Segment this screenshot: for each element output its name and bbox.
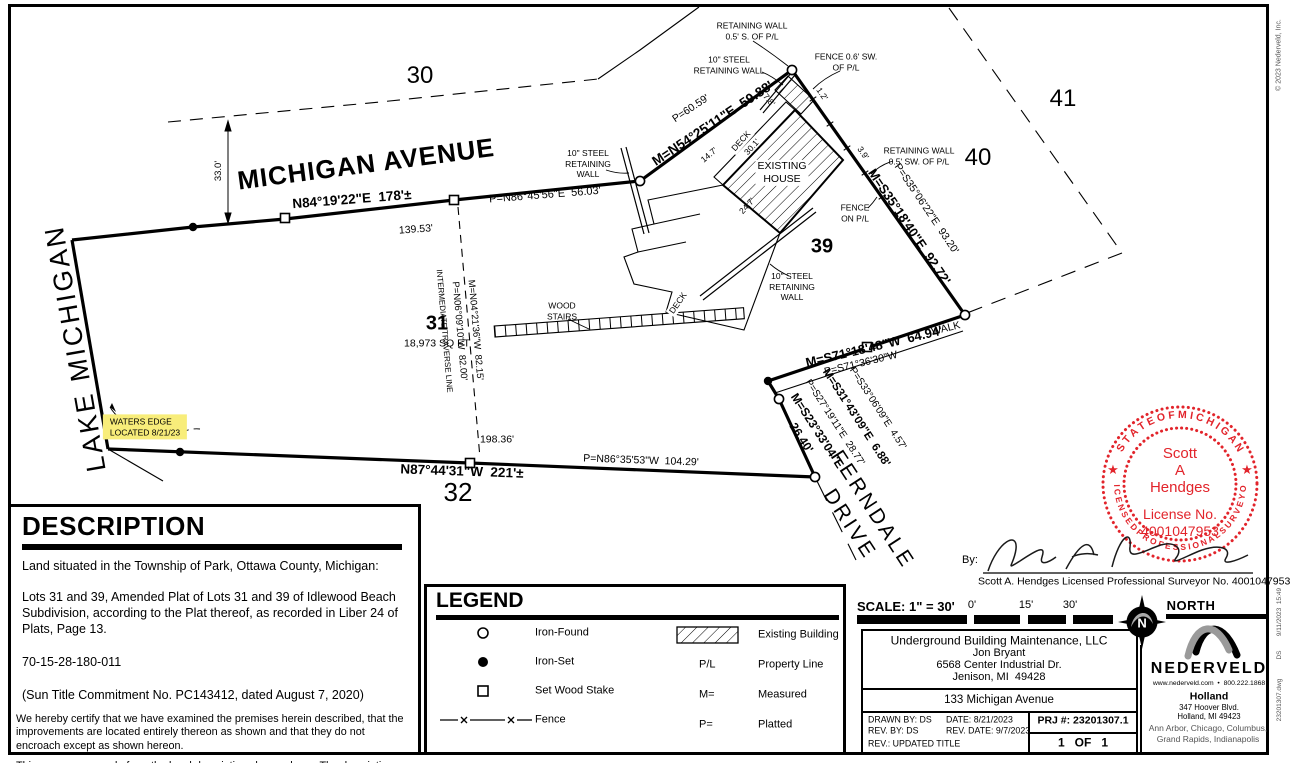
description-title: DESCRIPTION bbox=[22, 511, 404, 542]
title-block-divider-1 bbox=[861, 688, 1138, 690]
lot-41: 41 bbox=[1050, 84, 1077, 114]
legend-set-wood-stake: Set Wood Stake bbox=[535, 684, 614, 697]
north-label: NORTH bbox=[1167, 598, 1216, 614]
scale-tick-30: 30' bbox=[1063, 599, 1077, 613]
dim-row-width: 33.0' bbox=[213, 161, 225, 181]
legend-title: LEGEND bbox=[436, 589, 843, 613]
site-address: 133 Michigan Avenue bbox=[944, 693, 1054, 707]
drawn-by: DRAWN BY: DS bbox=[868, 715, 932, 726]
legend-pl-symbol: P/L bbox=[699, 658, 716, 671]
signature-by-label: By: bbox=[962, 554, 978, 568]
margin-plot-stamp: 9/11/2023 15:49 bbox=[1276, 588, 1284, 636]
title-block-divider-3 bbox=[1028, 732, 1138, 734]
seal-star-left: ★ bbox=[1107, 462, 1119, 477]
row-dashed-lines bbox=[168, 7, 1122, 560]
lot-30: 30 bbox=[407, 61, 434, 91]
description-title-rule bbox=[22, 544, 402, 550]
seal-license-label: License No. bbox=[1143, 506, 1217, 522]
legend-fence: Fence bbox=[535, 713, 566, 726]
seal-name-2: A bbox=[1175, 462, 1185, 479]
callout-fence-on-pl: FENCE ON P/L bbox=[841, 202, 870, 223]
rev-by: REV. BY: DS bbox=[868, 726, 919, 737]
legend-platted: Platted bbox=[758, 718, 792, 731]
seal-name-1: Scott bbox=[1163, 445, 1198, 462]
nederveld-logo-arc bbox=[1188, 629, 1237, 656]
callout-steel-wall-low: 10" STEEL RETAINING WALL bbox=[769, 271, 815, 303]
signature-name-line: Scott A. Hendges Licensed Professional S… bbox=[978, 576, 1290, 589]
margin-filename: 23201307.dwg bbox=[1276, 679, 1284, 722]
description-cert1: We hereby certify that we have examined … bbox=[16, 713, 404, 753]
sheet-number: 1 OF 1 bbox=[1058, 736, 1108, 751]
callout-waters-edge: WATERS EDGE LOCATED 8/21/23 bbox=[103, 414, 187, 439]
compass-n: N bbox=[1137, 616, 1146, 631]
lot-40: 40 bbox=[965, 143, 992, 173]
description-p1: Land situated in the Township of Park, O… bbox=[22, 559, 404, 573]
scale-bar bbox=[857, 614, 1268, 624]
legend-iron-set: Iron-Set bbox=[535, 655, 574, 668]
bearing-north-dim: 139.53' bbox=[399, 222, 434, 237]
legend-measured: Measured bbox=[758, 688, 807, 701]
row-width-dimension bbox=[225, 121, 231, 223]
nederveld-address-2: Holland, MI 49423 bbox=[1177, 712, 1240, 722]
legend-iron-found: Iron-Found bbox=[535, 626, 589, 639]
legend-existing-building: Existing Building bbox=[758, 628, 839, 641]
margin-initials: DS bbox=[1276, 650, 1284, 659]
legend-m-symbol: M= bbox=[699, 688, 715, 701]
label-existing-house: EXISTING HOUSE bbox=[755, 160, 808, 186]
callout-retaining-wall-s: RETAINING WALL 0.5' S. OF P/L bbox=[717, 20, 788, 41]
seal-license-number: 4001047953 bbox=[1141, 523, 1219, 539]
legend-title-rule bbox=[436, 615, 839, 620]
lot-39: 39 bbox=[811, 235, 833, 260]
legend-property-line: Property Line bbox=[758, 658, 823, 671]
date: DATE: 8/21/2023 bbox=[946, 715, 1013, 726]
nederveld-office: Holland bbox=[1190, 690, 1229, 703]
seal-name-3: Hendges bbox=[1150, 479, 1210, 496]
callout-fence-sw: FENCE 0.6' SW. OF P/L bbox=[815, 51, 878, 72]
rev-note: REV.: UPDATED TITLE bbox=[868, 739, 960, 750]
margin-copyright: © 2023 Nederveld, Inc. bbox=[1276, 19, 1285, 91]
survey-sheet: N S T A T E O F M I C H I G A N L I C E … bbox=[0, 0, 1291, 763]
waters-edge-arrow bbox=[110, 403, 116, 412]
callout-retaining-wall-sw: RETAINING WALL 0.5' SW. OF P/L bbox=[884, 145, 955, 166]
description-p2: Lots 31 and 39, Amended Plat of Lots 31 … bbox=[22, 589, 404, 637]
legend-p-symbol: P= bbox=[699, 718, 713, 731]
title-block-divider-2 bbox=[861, 711, 1138, 713]
callout-steel-wall-left: 10" STEEL RETAINING WALL bbox=[565, 148, 611, 180]
callout-wood-stairs: WOOD STAIRS bbox=[547, 300, 577, 321]
callout-steel-wall-top: 10" STEEL RETAINING WALL bbox=[694, 54, 765, 75]
nederveld-name: NEDERVELD bbox=[1151, 659, 1267, 679]
nederveld-divider bbox=[1140, 645, 1142, 755]
project-number: PRJ #: 23201307.1 bbox=[1037, 714, 1128, 727]
description-section: DESCRIPTION Land situated in the Townshi… bbox=[10, 504, 421, 755]
scale-tick-15: 15' bbox=[1019, 599, 1033, 613]
shoreline-extension bbox=[108, 449, 163, 481]
client-address-2: Jenison, MI 49428 bbox=[953, 671, 1046, 685]
description-commitment: (Sun Title Commitment No. PC143412, date… bbox=[22, 688, 404, 702]
bearing-south-dim: 198.36' bbox=[480, 433, 514, 446]
seal-star-right: ★ bbox=[1241, 462, 1253, 477]
nederveld-web: www.nederveld.com • 800.222.1868 bbox=[1153, 680, 1265, 688]
description-parcel: 70-15-28-180-011 bbox=[22, 655, 404, 669]
rev-date: REV. DATE: 9/7/2023 bbox=[946, 726, 1030, 737]
scale-label: SCALE: 1" = 30' bbox=[857, 599, 955, 615]
structure-hatch bbox=[775, 76, 814, 114]
scale-tick-0: 0' bbox=[968, 599, 976, 613]
nederveld-cities: Ann Arbor, Chicago, Columbus, Grand Rapi… bbox=[1149, 723, 1268, 745]
wood-stairs bbox=[494, 308, 744, 337]
